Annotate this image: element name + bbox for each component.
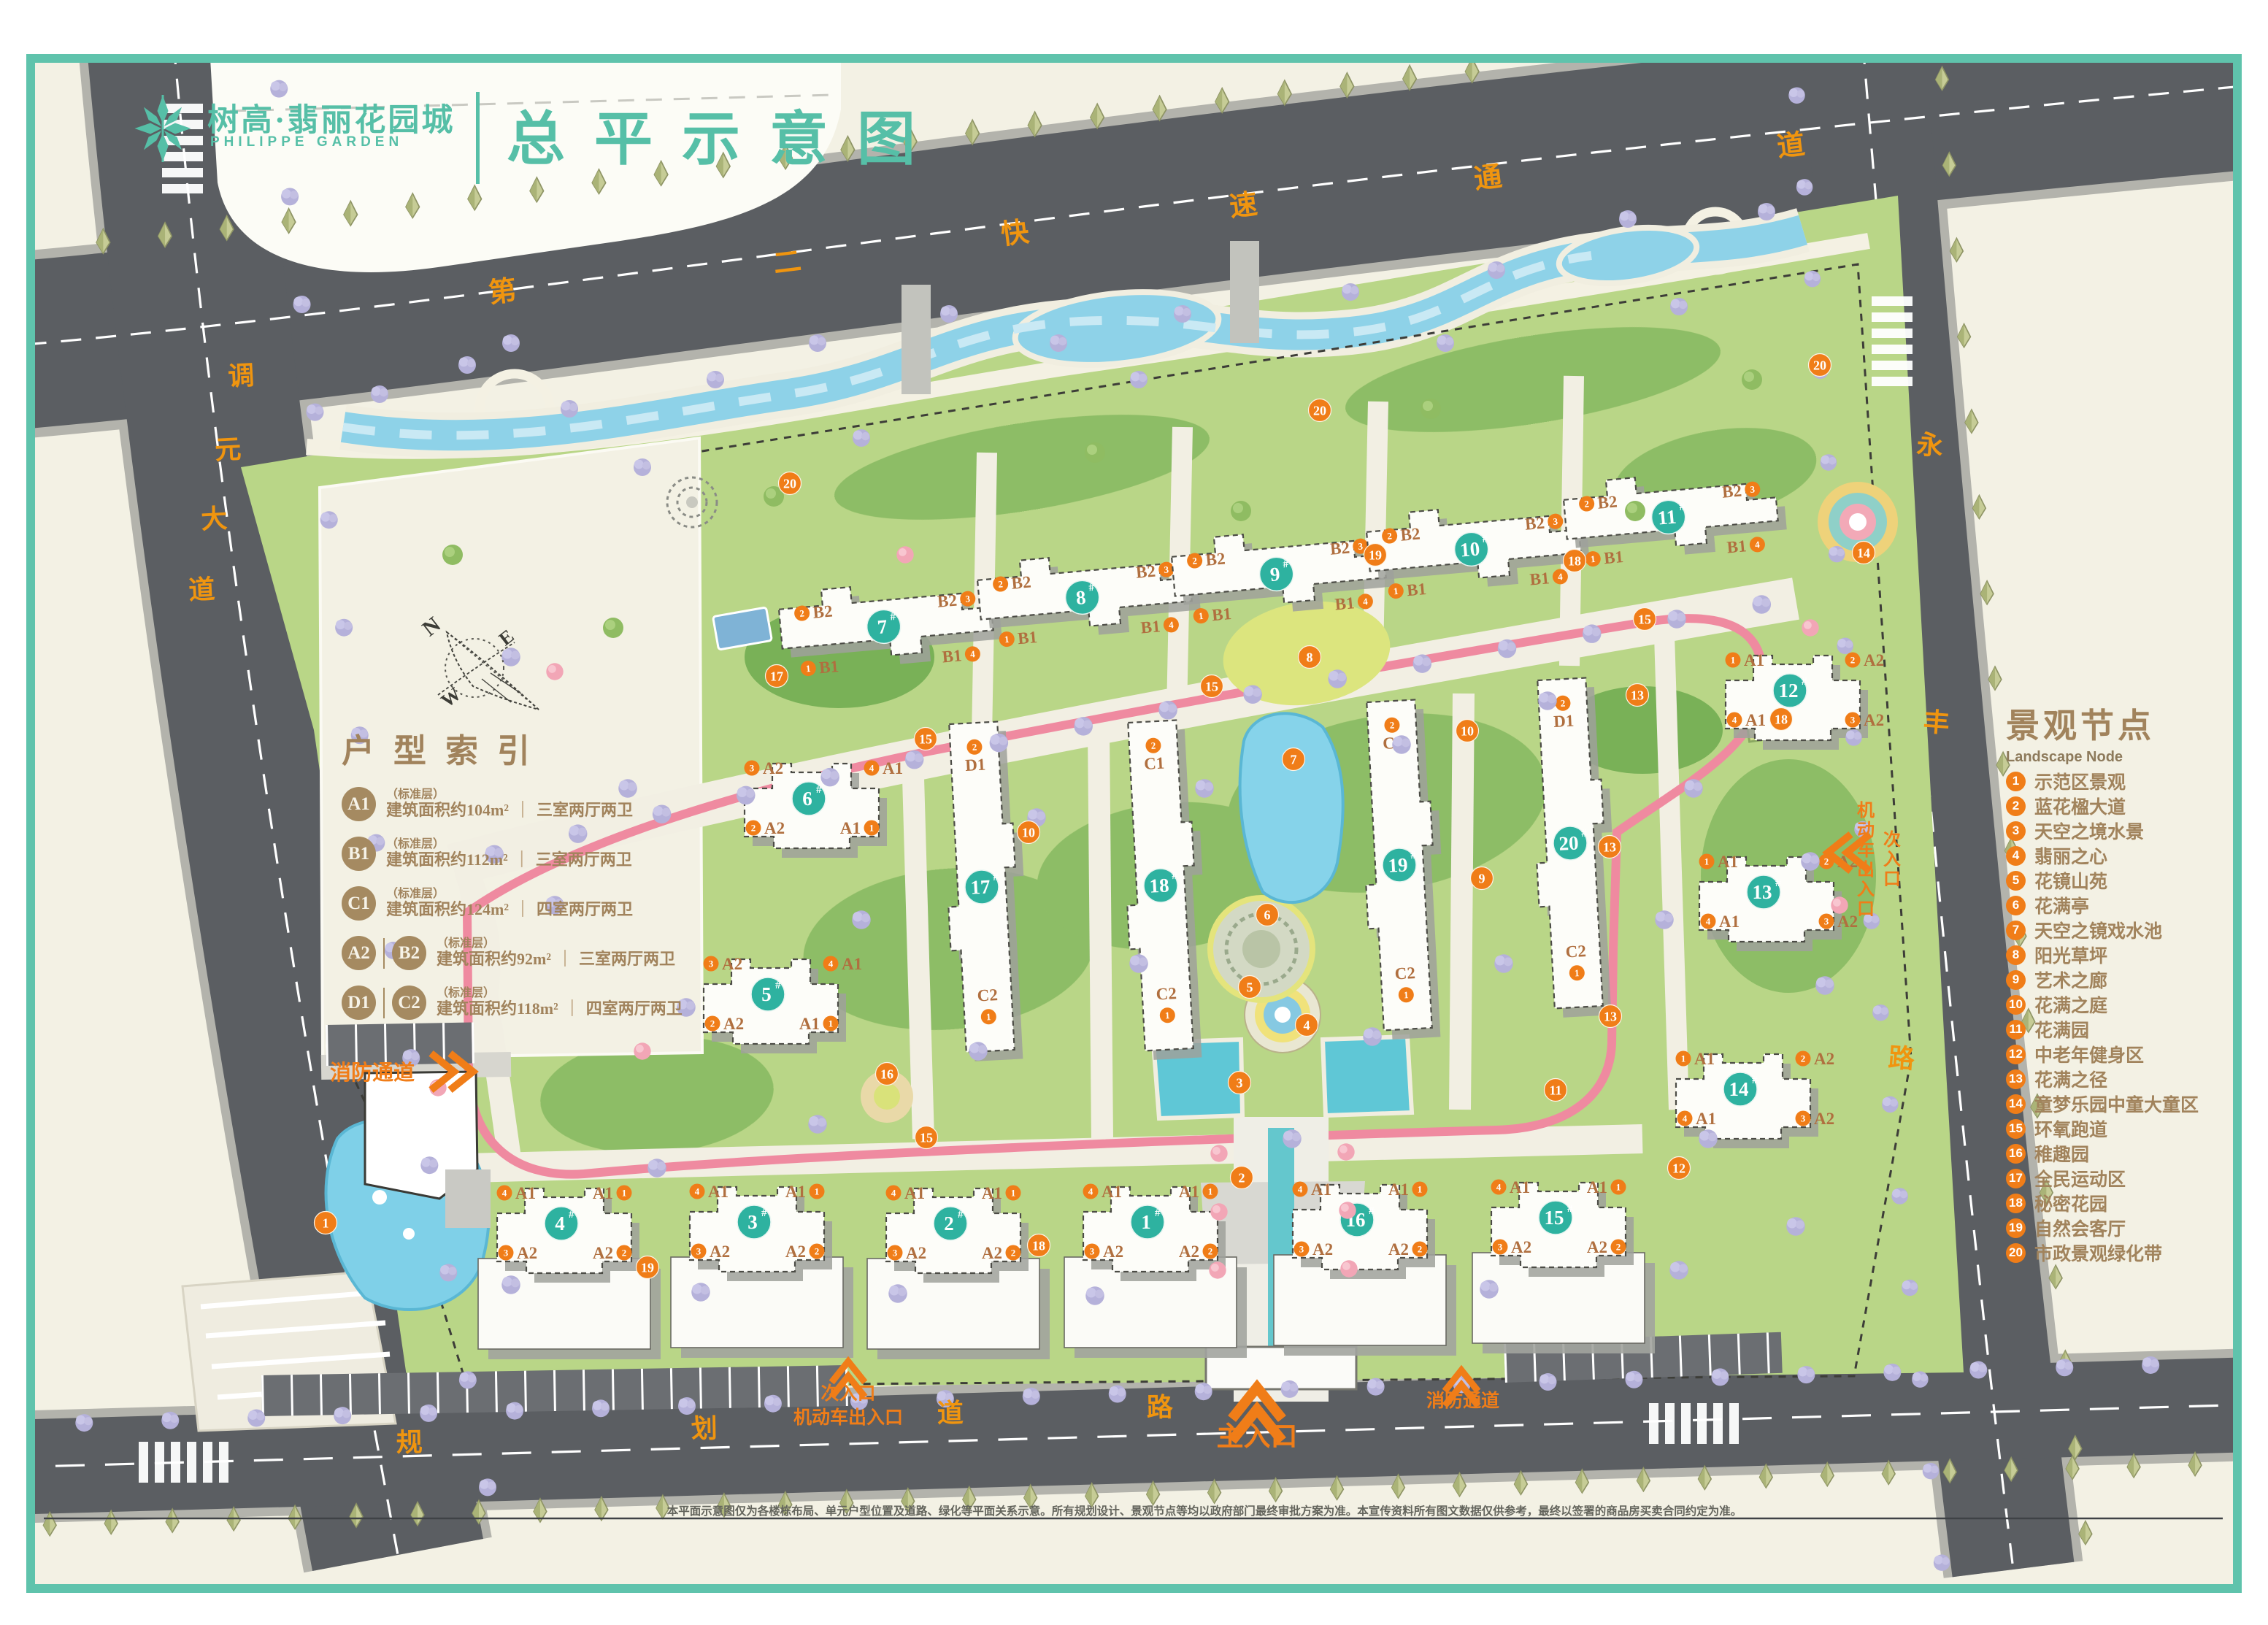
svg-text:消防通道: 消防通道 [330,1061,415,1085]
svg-text:入: 入 [1883,850,1901,869]
tree-icon [1802,619,1818,636]
tree-icon [506,1402,523,1420]
tree-icon [1711,1368,1729,1386]
tree-icon [1969,1361,1987,1379]
svg-text:A2: A2 [785,1242,806,1261]
node-number-badge: 7 [2006,921,2026,940]
landscape-node-marker-20: 20 [779,472,802,495]
svg-text:#: # [1752,1075,1758,1086]
tree-icon [737,786,756,805]
node-number-badge: 5 [2006,871,2026,891]
road-name-char: 道 [1775,129,1807,163]
svg-text:1: 1 [829,1018,834,1029]
node-legend-subtitle: Landscape Node [2006,749,2240,766]
tree-icon [1912,1371,1929,1388]
tree-icon [1821,454,1837,471]
svg-text:1: 1 [1393,585,1399,597]
svg-text:A2: A2 [1511,1238,1531,1256]
svg-text:13: 13 [1603,840,1616,855]
svg-text:5: 5 [761,983,772,1005]
svg-text:3: 3 [1299,1244,1304,1255]
unit-badge: A2 [342,936,376,970]
svg-text:3: 3 [1090,1246,1095,1257]
landscape-node-marker-18: 18 [1028,1234,1050,1257]
svg-text:B1: B1 [1603,548,1624,567]
svg-text:A2: A2 [1814,1110,1834,1128]
tree-icon [1281,1380,1299,1398]
landscape-node-row: 14童梦乐园中童大童区 [2006,1094,2240,1113]
building-number-badge: 1# [1131,1205,1164,1239]
tree-icon [1753,595,1772,614]
tree-icon [691,1283,710,1302]
tree-icon [1872,1004,1889,1021]
landscape-node-marker-11: 11 [1545,1079,1567,1102]
svg-text:15: 15 [1205,680,1218,694]
unit-floor-note: （标准层） [386,838,632,851]
node-label: 阳光草坪 [2034,942,2107,968]
landscape-node-row: 19自然会客厅 [2006,1218,2240,1237]
tree-icon [1488,261,1505,279]
svg-text:A1: A1 [1311,1180,1331,1199]
svg-text:A2: A2 [1388,1240,1409,1259]
landscape-node-marker-15: 15 [1201,675,1223,698]
svg-text:2: 2 [1584,498,1590,510]
landscape-node-row: 4翡丽之心 [2006,846,2240,865]
svg-text:次入口: 次入口 [820,1383,875,1404]
landscape-node-marker-17: 17 [766,665,788,688]
svg-text:2: 2 [944,1213,954,1234]
tree-icon [501,648,520,666]
tree-icon [502,334,520,352]
site-plan-map: 4A1A113A2A224#4A1A113A2A223#4A1A113A2A22… [0,0,2268,1621]
tree-icon [75,1414,93,1432]
svg-text:19: 19 [1369,548,1382,563]
tree-icon [1538,691,1557,710]
svg-text:17: 17 [970,875,991,898]
svg-text:3: 3 [1498,1242,1503,1253]
tree-icon [1480,1280,1499,1299]
svg-text:5: 5 [1247,980,1253,995]
svg-text:20: 20 [1558,831,1580,854]
unit-rooms: 四室两厅两卫 [586,999,683,1018]
tree-icon [420,1156,438,1174]
svg-text:#: # [1155,1207,1161,1219]
node-number-badge: 3 [2006,821,2026,841]
tree-icon [334,1407,351,1424]
svg-text:A1: A1 [1696,1110,1716,1128]
landscape-node-row: 5花镜山苑 [2006,871,2240,890]
svg-text:1: 1 [986,1011,991,1022]
tree-icon [1882,1096,1899,1113]
svg-text:B1: B1 [942,646,963,666]
tree-icon [678,1397,696,1415]
node-number-badge: 4 [2006,846,2026,866]
landscape-node-marker-4: 4 [1296,1014,1318,1037]
svg-text:A1: A1 [1694,1050,1715,1068]
svg-text:20: 20 [783,477,796,491]
tree-icon [1339,1202,1356,1218]
tree-icon [1796,179,1813,196]
svg-text:A1: A1 [1179,1183,1199,1201]
tree-icon [1923,1463,1940,1480]
tree-icon [592,1399,610,1417]
svg-text:A2: A2 [764,819,785,837]
svg-text:4: 4 [1706,916,1711,927]
svg-text:#: # [1172,870,1178,882]
unit-type-row: B1（标准层）建筑面积约112m²｜三室两厅两卫 [342,837,692,871]
node-label: 天空之镜戏水池 [2034,917,2162,943]
node-number-badge: 8 [2006,945,2026,965]
svg-text:10: 10 [1022,826,1035,840]
landscape-node-row: 8阳光草坪 [2006,945,2240,964]
tree-icon [1328,669,1347,688]
tree-icon [940,305,958,323]
unit-area: 建筑面积约92m² [437,950,551,968]
svg-text:口: 口 [1857,900,1875,919]
node-label: 童梦乐园中童大童区 [2034,1091,2199,1117]
disclaimer-text: 本平面示意图仅为各楼栋布局、单元户型位置及道路、绿化等平面关系示意。所有规划设计… [620,1502,1788,1518]
node-label: 翡丽之心 [2034,842,2107,869]
tree-icon [1625,501,1645,521]
tree-icon [896,546,913,563]
landscape-node-row: 18秘密花园 [2006,1194,2240,1213]
tree-icon [458,356,476,374]
svg-text:C2: C2 [1565,942,1586,961]
landscape-node-marker-5: 5 [1239,976,1261,999]
landscape-node-marker-19: 19 [637,1256,659,1279]
svg-text:B1: B1 [1017,628,1038,648]
svg-text:10: 10 [1459,537,1481,561]
landscape-node-marker-19: 19 [1364,544,1387,566]
tree-icon [320,511,338,529]
tree-icon [546,663,563,680]
tree-icon [479,1478,496,1496]
tree-icon [1786,1217,1805,1236]
node-legend-title: 景观节点 [2006,699,2240,748]
svg-text:#: # [761,1207,767,1219]
svg-text:10: 10 [1461,724,1474,739]
svg-text:#: # [1802,676,1807,688]
unit-type-row: A1（标准层）建筑面积约104m²｜三室两厅两卫 [342,787,692,821]
svg-text:1: 1 [622,1188,627,1199]
building-number-badge: 3# [737,1205,771,1239]
tree-icon [1837,638,1853,655]
landscape-node-marker-18: 18 [1770,708,1793,731]
svg-text:1: 1 [869,823,874,834]
road-name-char: 划 [691,1414,718,1444]
tree-icon [1804,271,1821,288]
svg-text:B2: B2 [1135,562,1156,582]
svg-text:3: 3 [696,1246,701,1257]
svg-text:1: 1 [1731,655,1736,666]
landscape-node-marker-14: 14 [1853,542,1875,564]
landscape-node-row: 9艺术之廊 [2006,970,2240,989]
svg-text:6: 6 [802,788,812,810]
landscape-node-marker-16: 16 [876,1063,899,1086]
node-label: 花满园 [2034,1016,2089,1042]
node-label: 中老年健身区 [2034,1041,2144,1067]
road-name-char: 道 [188,575,215,605]
svg-text:2: 2 [972,742,977,753]
tree-icon [1829,546,1845,563]
svg-text:B2: B2 [812,602,834,621]
tree-icon [1340,1260,1357,1277]
node-label: 花满亭 [2034,892,2089,918]
road-name-char: 规 [396,1428,423,1458]
tree-icon [1669,1261,1688,1280]
node-number-badge: 10 [2006,995,2026,1015]
svg-text:11: 11 [1657,505,1677,529]
svg-text:4: 4 [829,959,834,969]
landscape-node-marker-10: 10 [1018,821,1040,844]
svg-text:4: 4 [1088,1186,1093,1197]
svg-text:A2: A2 [1179,1242,1199,1261]
svg-text:11: 11 [1549,1083,1561,1098]
tree-icon [1283,1129,1302,1148]
tree-icon [1831,896,1848,913]
tree-icon [809,334,826,352]
page-title: 总平示意图 [507,92,945,177]
node-number-badge: 13 [2006,1069,2026,1089]
tree-icon [247,1409,265,1426]
unit-separator: ｜ [508,850,536,869]
svg-text:4: 4 [1496,1182,1502,1193]
tree-icon [707,371,724,388]
unit-badge: C1 [342,886,376,921]
tree-icon [561,400,578,418]
sky-mirror-pool [1240,713,1343,902]
landscape-node-marker-9: 9 [1471,867,1494,890]
svg-text:车: 车 [1857,840,1875,860]
svg-text:A2: A2 [1814,1050,1834,1068]
landscape-node-marker-1: 1 [315,1212,337,1234]
tree-icon [439,1264,457,1281]
svg-text:1: 1 [1004,634,1010,645]
svg-text:1: 1 [1011,1188,1016,1199]
building-number-badge: 5# [751,977,785,1011]
svg-text:消防通道: 消防通道 [1426,1390,1499,1411]
svg-text:2: 2 [1239,1171,1245,1186]
master-plan-poster: 4A1A113A2A224#4A1A113A2A223#4A1A113A2A22… [0,0,2268,1621]
unit-floor-note: （标准层） [386,788,633,802]
road-name-char: 调 [227,361,255,391]
tree-icon [2056,1359,2073,1376]
header-divider [476,92,480,184]
svg-text:B1: B1 [1529,569,1550,588]
svg-text:2: 2 [1389,720,1394,731]
landscape-node-marker-12: 12 [1668,1157,1691,1180]
landscape-node-marker-13: 13 [1599,1005,1622,1028]
mirror-pool-right [1323,1037,1412,1115]
tree-icon [161,1412,179,1429]
svg-text:A1: A1 [982,1184,1002,1202]
road-name-char: 快 [999,217,1031,250]
svg-text:1: 1 [1681,1053,1686,1064]
svg-text:20: 20 [1813,358,1826,373]
landscape-node-row: 11花满园 [2006,1020,2240,1039]
node-label: 花镜山苑 [2034,867,2107,894]
tree-icon [1625,1371,1642,1388]
road-name-char: 路 [1887,1043,1916,1074]
svg-text:4: 4 [891,1188,896,1199]
tree-icon [1195,1383,1212,1400]
road-name-char: 二 [772,246,803,280]
svg-text:2: 2 [1824,856,1829,867]
tree-icon [1891,1188,1908,1205]
svg-text:2: 2 [1011,1248,1016,1259]
unit-separator: ｜ [509,900,537,918]
tree-icon [1210,1145,1227,1161]
unit-rooms: 三室两厅两卫 [579,950,675,968]
svg-text:3: 3 [750,763,755,774]
unit-description: 建筑面积约112m²｜三室两厅两卫 [386,851,632,869]
svg-text:B2: B2 [1205,549,1226,569]
svg-text:17: 17 [770,669,783,684]
unit-description: 建筑面积约124m²｜四室两厅两卫 [386,901,633,919]
svg-text:A2: A2 [1864,711,1884,729]
tree-icon [905,750,924,769]
svg-text:A1: A1 [904,1184,925,1202]
svg-text:A1: A1 [1744,651,1764,669]
svg-text:C1: C1 [1144,754,1165,773]
unit-badge: D1 [342,986,376,1020]
tree-icon [852,910,871,929]
svg-text:3: 3 [1850,715,1856,726]
node-number-badge: 17 [2006,1169,2026,1188]
landscape-node-row: 7天空之镜戏水池 [2006,921,2240,940]
svg-text:19: 19 [641,1261,654,1275]
landscape-node-marker-13: 13 [1626,684,1649,707]
svg-text:19: 19 [1388,853,1409,876]
road-name-char: 道 [937,1399,964,1429]
svg-text:1: 1 [1404,989,1409,1000]
svg-text:B1: B1 [1334,593,1356,613]
svg-text:4: 4 [502,1188,507,1199]
svg-text:A2: A2 [723,1015,744,1033]
building-number-badge: 6# [792,782,826,815]
svg-text:A1: A1 [883,759,903,777]
brand-logo-icon [128,91,197,166]
landscape-node-row: 12中老年健身区 [2006,1045,2240,1064]
svg-text:8: 8 [1075,586,1087,609]
landscape-node-marker-10: 10 [1456,720,1479,742]
svg-text:2: 2 [710,1018,715,1029]
svg-text:2: 2 [1418,1244,1423,1255]
tree-icon [1243,685,1262,704]
tree-icon [281,188,299,205]
tree-icon [1494,954,1513,973]
unit-badge: B2 [392,936,426,970]
svg-text:A2: A2 [710,1242,730,1261]
svg-text:B2: B2 [1721,482,1742,502]
tree-icon [1050,334,1067,352]
tree-icon [603,618,623,638]
svg-text:次: 次 [1883,830,1901,850]
node-number-badge: 6 [2006,896,2026,915]
tree-icon [293,296,311,313]
unit-floor-note: （标准层） [437,987,683,1000]
building-number-badge: 4# [545,1207,578,1240]
svg-text:A2: A2 [982,1244,1002,1262]
svg-text:B2: B2 [1597,492,1618,512]
svg-text:12: 12 [1672,1161,1685,1176]
tree-icon [1742,369,1762,390]
svg-text:口: 口 [1883,870,1901,889]
svg-text:A1: A1 [1719,913,1740,931]
svg-text:B2: B2 [937,591,958,611]
tree-icon [1845,729,1862,746]
tree-icon [888,1284,907,1303]
svg-text:4: 4 [1732,715,1737,726]
tree-icon [969,1042,988,1061]
unit-separator: ｜ [551,950,579,968]
svg-text:4: 4 [1683,1113,1688,1124]
svg-text:3: 3 [893,1248,898,1259]
svg-text:C2: C2 [1156,984,1177,1003]
svg-text:2: 2 [1616,1242,1621,1253]
svg-text:18: 18 [1149,874,1170,896]
unit-type-row: D1C2（标准层）建筑面积约118m²｜四室两厅两卫 [342,986,692,1020]
tree-icon [1367,1378,1385,1396]
node-number-badge: 11 [2006,1020,2026,1040]
svg-text:15: 15 [1545,1207,1564,1229]
svg-text:1: 1 [1198,610,1204,622]
tree-icon [501,1275,520,1294]
unit-separator: ｜ [509,801,537,819]
svg-text:13: 13 [1631,688,1644,703]
unit-rooms: 三室两厅两卫 [537,801,633,819]
svg-text:出: 出 [1857,860,1875,880]
svg-text:B2: B2 [1400,524,1421,544]
tree-icon [1210,1203,1227,1220]
tree-icon [1498,639,1517,658]
unit-badge: C2 [392,986,426,1020]
landscape-node-row: 16稚趣园 [2006,1144,2240,1163]
brand-name-cn: 树高·翡丽花园城 [207,95,455,140]
tree-icon [1158,701,1177,720]
svg-text:3: 3 [1824,916,1829,927]
landscape-node-marker-20: 20 [1809,354,1831,377]
tree-icon [2142,1356,2159,1374]
node-number-badge: 14 [2006,1094,2026,1114]
svg-text:2: 2 [998,578,1004,590]
svg-text:#: # [1410,850,1417,861]
svg-text:机: 机 [1857,801,1875,821]
svg-text:4: 4 [1298,1184,1303,1195]
svg-text:A2: A2 [1864,651,1884,669]
svg-text:14: 14 [1729,1078,1749,1100]
svg-text:A1: A1 [799,1015,820,1033]
landscape-node-row: 17全民运动区 [2006,1169,2240,1188]
node-label: 蓝花楹大道 [2034,793,2126,819]
svg-text:A1: A1 [842,955,862,973]
svg-text:机动车出入口: 机动车出入口 [793,1407,903,1428]
building-number-badge: 13# [1747,875,1781,909]
landscape-node-row: 15环氧跑道 [2006,1119,2240,1138]
road-name-char: 丰 [1922,707,1950,738]
node-label: 花满之径 [2034,1066,2107,1092]
unit-separator: ｜ [558,999,586,1018]
landscape-node-marker-15: 15 [915,1126,938,1149]
landscape-node-marker-6: 6 [1256,904,1279,926]
tree-icon [1655,910,1674,929]
building-number-badge: 12# [1773,674,1807,707]
unit-type-row: C1（标准层）建筑面积约124m²｜四室两厅两卫 [342,886,692,921]
svg-text:13: 13 [1753,881,1772,903]
tree-icon [1337,1143,1354,1160]
node-label: 稚趣园 [2034,1140,2089,1167]
tree-icon [1085,1286,1104,1305]
